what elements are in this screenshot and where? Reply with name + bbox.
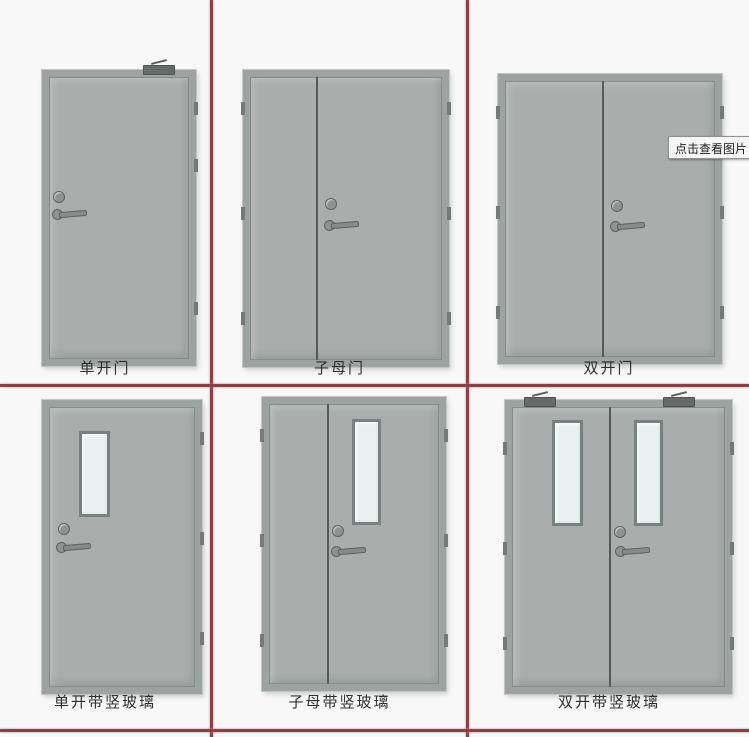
hinge-icon <box>200 632 204 645</box>
image-tooltip: 点击查看图片 <box>668 136 749 159</box>
hinge-icon <box>260 429 264 442</box>
door-double <box>498 74 722 364</box>
door-mother-child <box>243 70 449 367</box>
lock-knob-icon <box>332 525 344 537</box>
leaf-divider <box>602 81 604 357</box>
hinge-icon <box>444 429 448 442</box>
glass-panel <box>352 419 381 525</box>
hinge-icon <box>496 206 500 219</box>
leaf-divider <box>327 404 329 684</box>
hinge-icon <box>447 207 451 220</box>
lock-knob-icon <box>614 526 626 538</box>
hinge-icon <box>720 206 724 219</box>
hinge-icon <box>260 634 264 647</box>
hinge-icon <box>730 442 734 455</box>
hinge-icon <box>194 302 198 315</box>
hinge-icon <box>200 532 204 545</box>
grid-line-horizontal-bottom <box>0 729 749 732</box>
door-handle-icon <box>324 219 358 231</box>
hinge-icon <box>194 159 198 172</box>
hinge-icon <box>720 106 724 119</box>
hinge-icon <box>503 637 507 650</box>
hinge-icon <box>241 207 245 220</box>
door-single-glass <box>42 400 202 694</box>
fire-door-types-image[interactable]: 单开门 子母门 双开门 单开带竖玻璃 <box>0 0 749 737</box>
door-handle-icon <box>331 545 365 557</box>
hinge-icon <box>447 102 451 115</box>
lock-knob-icon <box>611 200 623 212</box>
glass-panel <box>79 431 110 517</box>
door-closer-icon <box>663 397 695 407</box>
door-label-double-glass: 双开带竖玻璃 <box>469 691 749 712</box>
hinge-icon <box>444 634 448 647</box>
leaf-divider <box>609 407 611 687</box>
door-handle-icon <box>56 541 90 553</box>
hinge-icon <box>241 102 245 115</box>
hinge-icon <box>200 432 204 445</box>
hinge-icon <box>503 442 507 455</box>
door-handle-icon <box>610 220 644 232</box>
hinge-icon <box>730 542 734 555</box>
door-handle-icon <box>52 208 86 220</box>
lock-knob-icon <box>53 191 65 203</box>
hinge-icon <box>444 534 448 547</box>
door-label-mother-child: 子母门 <box>213 357 466 378</box>
door-closer-icon <box>524 397 556 407</box>
door-handle-icon <box>615 545 649 557</box>
hinge-icon <box>503 542 507 555</box>
glass-panel <box>634 420 663 526</box>
glass-panel <box>552 420 583 526</box>
door-label-single-glass: 单开带竖玻璃 <box>0 691 210 712</box>
hinge-icon <box>720 306 724 319</box>
lock-knob-icon <box>58 523 70 535</box>
door-single <box>42 70 196 366</box>
hinge-icon <box>260 534 264 547</box>
leaf-divider <box>316 77 318 360</box>
hinge-icon <box>241 312 245 325</box>
hinge-icon <box>496 106 500 119</box>
hinge-icon <box>496 306 500 319</box>
door-label-double: 双开门 <box>469 357 749 378</box>
hinge-icon <box>447 312 451 325</box>
hinge-icon <box>194 102 198 115</box>
door-double-glass <box>505 400 732 694</box>
door-mother-child-glass <box>262 397 446 691</box>
door-label-mother-child-glass: 子母带竖玻璃 <box>213 691 466 712</box>
grid-line-horizontal-middle <box>0 384 749 387</box>
door-label-single: 单开门 <box>0 357 210 378</box>
hinge-icon <box>730 637 734 650</box>
lock-knob-icon <box>325 198 337 210</box>
door-closer-icon <box>143 65 175 75</box>
